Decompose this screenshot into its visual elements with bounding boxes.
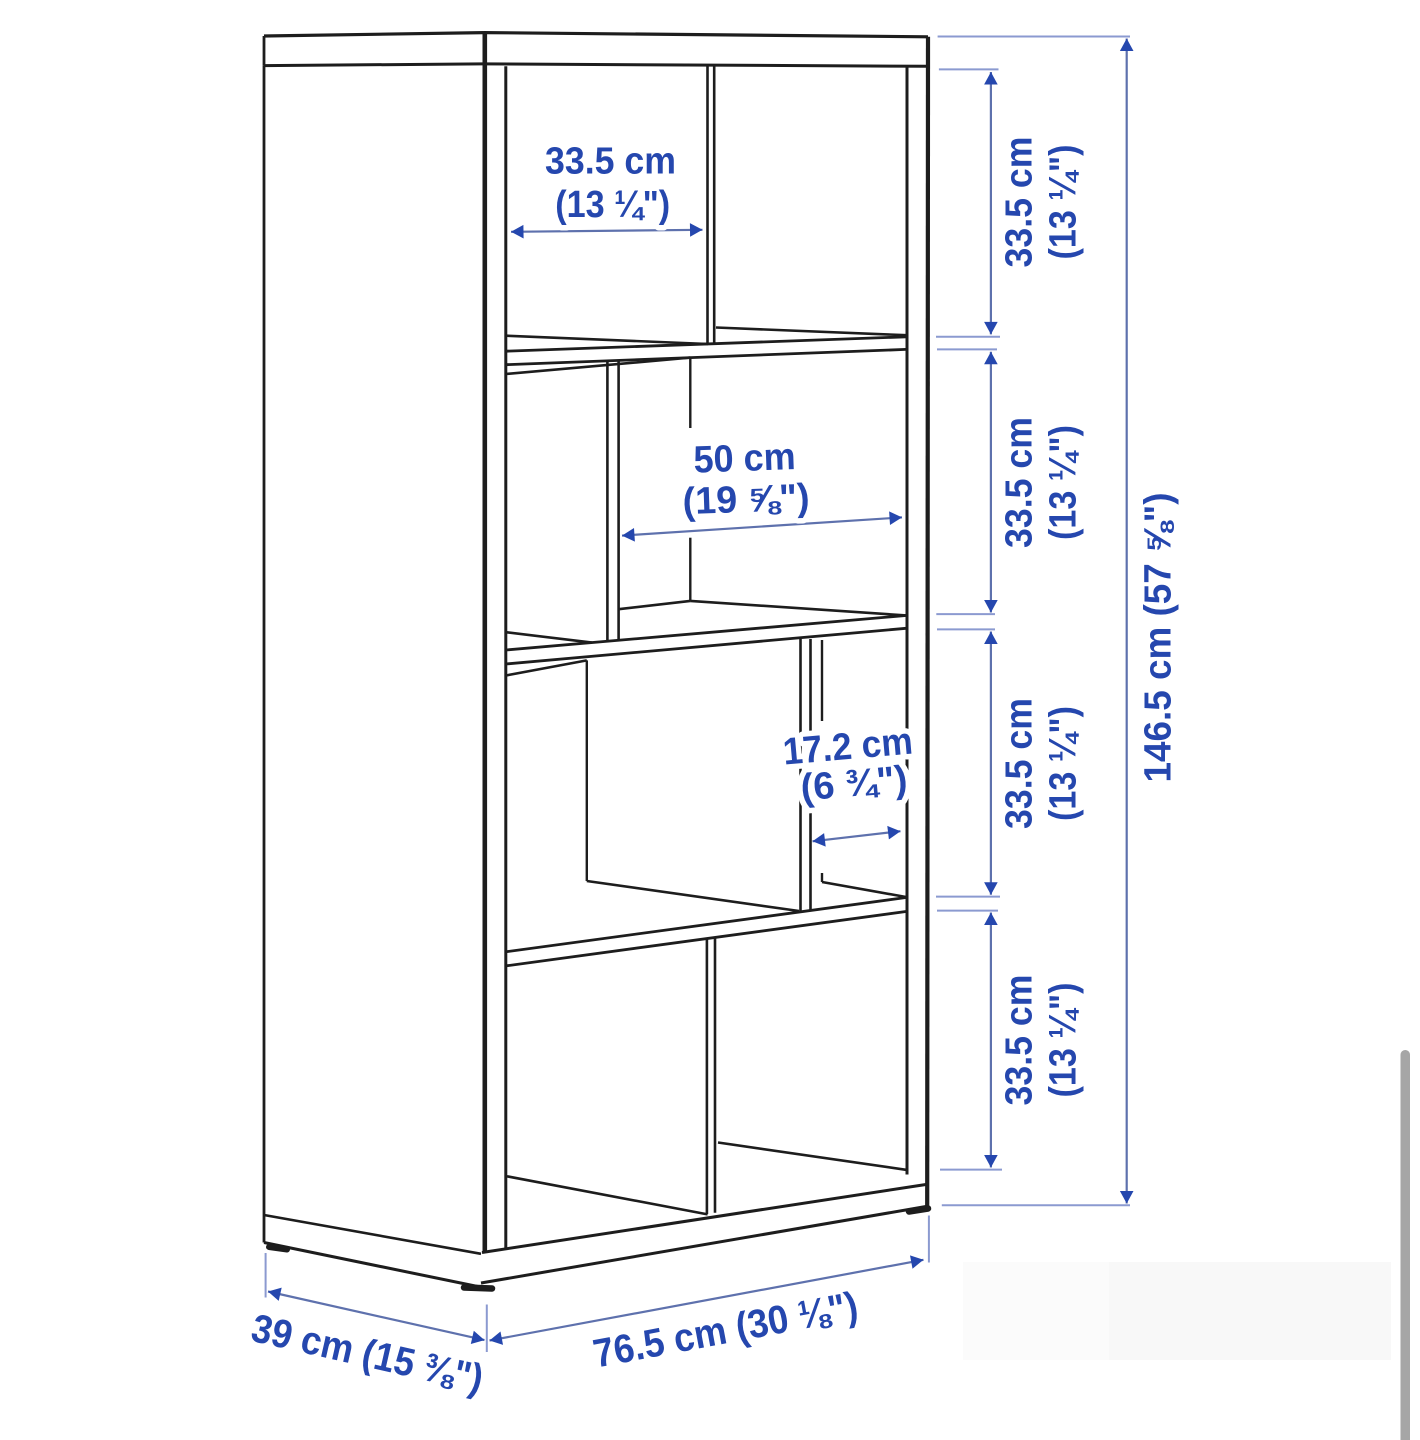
svg-text:(19 ⅝"): (19 ⅝"): [682, 477, 810, 523]
svg-text:(6 ¾"): (6 ¾"): [799, 758, 909, 809]
svg-text:(13 ¼"): (13 ¼"): [555, 184, 670, 226]
svg-text:33.5 cm: 33.5 cm: [999, 698, 1041, 829]
svg-text:(13 ¼"): (13 ¼"): [1043, 706, 1085, 821]
svg-text:33.5 cm: 33.5 cm: [999, 975, 1041, 1106]
svg-text:33.5 cm: 33.5 cm: [999, 417, 1041, 548]
svg-text:50 cm: 50 cm: [693, 436, 796, 482]
svg-text:(13 ¼"): (13 ¼"): [1043, 983, 1085, 1098]
svg-text:146.5 cm (57 ⅝"): 146.5 cm (57 ⅝"): [1138, 493, 1180, 783]
svg-text:39 cm (15 ⅜"): 39 cm (15 ⅜"): [247, 1306, 487, 1401]
svg-text:33.5 cm: 33.5 cm: [545, 140, 676, 182]
svg-text:(13 ¼"): (13 ¼"): [1043, 145, 1085, 260]
svg-text:33.5 cm: 33.5 cm: [999, 137, 1041, 268]
svg-text:(13 ¼"): (13 ¼"): [1043, 425, 1085, 540]
svg-text:76.5 cm (30 ⅛"): 76.5 cm (30 ⅛"): [590, 1284, 862, 1377]
